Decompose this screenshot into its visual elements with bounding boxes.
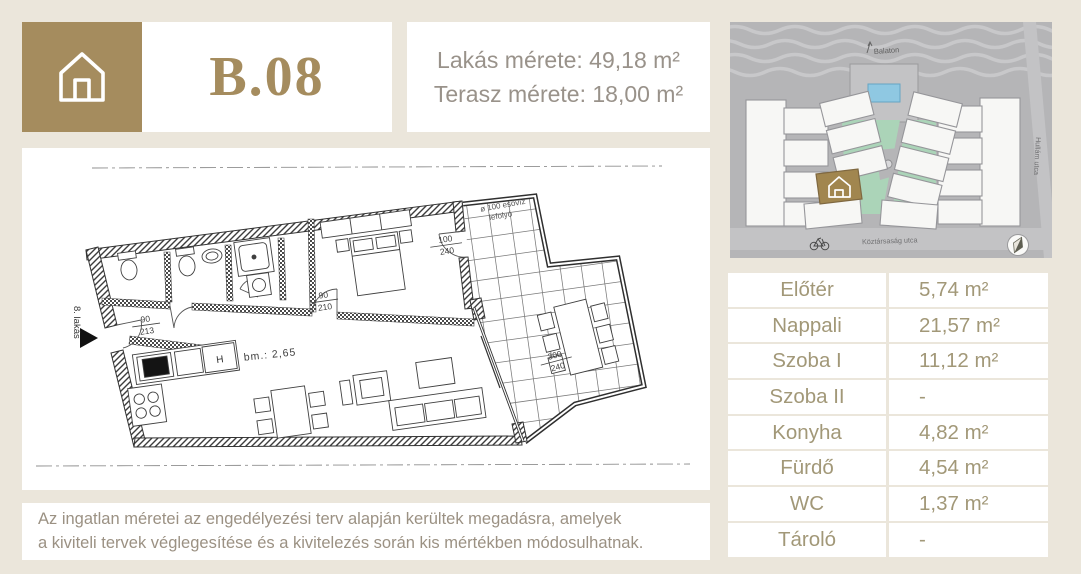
svg-text:90: 90 (140, 313, 151, 324)
unit-code: B.08 (209, 45, 324, 109)
room-name: Szoba II (728, 380, 886, 414)
room-name: WC (728, 487, 886, 521)
svg-text:100: 100 (438, 233, 454, 245)
svg-text:90: 90 (318, 289, 329, 300)
apartment-size: Lakás mérete: 49,18 m² (437, 47, 680, 74)
svg-text:Balaton: Balaton (874, 45, 900, 56)
size-box: Lakás mérete: 49,18 m² Terasz mérete: 18… (407, 22, 710, 132)
dining-set (253, 383, 329, 440)
room-name: Nappali (728, 309, 886, 343)
room-name: Fürdő (728, 451, 886, 485)
bedroom-set (320, 210, 420, 300)
disclaimer-line2: a kiviteli tervek véglegesítése és a kiv… (38, 532, 710, 555)
svg-text:213: 213 (139, 325, 155, 337)
room-area: 11,12 m² (889, 344, 1048, 378)
room-area: - (889, 523, 1048, 557)
interior-walls (102, 219, 474, 356)
svg-text:210: 210 (317, 301, 333, 313)
room-name: Előtér (728, 273, 886, 307)
site-map: Balaton Köztársaság utca Hullám utca (730, 22, 1052, 258)
highlighted-unit (816, 169, 862, 204)
disclaimer: Az ingatlan méretei az engedélyezési ter… (22, 503, 710, 560)
room-area-table: Előtér 5,74 m² Nappali 21,57 m² Szoba I … (728, 273, 1048, 557)
room-area: 21,57 m² (889, 309, 1048, 343)
kitchen: H (128, 340, 240, 426)
disclaimer-line1: Az ingatlan méretei az engedélyezési ter… (38, 508, 710, 531)
entrance-label: 8. lakás (71, 306, 82, 339)
room-area: 4,82 m² (889, 416, 1048, 450)
room-area: - (889, 380, 1048, 414)
room-area: 5,74 m² (889, 273, 1048, 307)
terrace-size: Terasz mérete: 18,00 m² (434, 81, 683, 108)
room-name: Tároló (728, 523, 886, 557)
room-area: 4,54 m² (889, 451, 1048, 485)
room-name: Szoba I (728, 344, 886, 378)
room-name: Konyha (728, 416, 886, 450)
house-icon (51, 46, 113, 108)
fridge-label: H (216, 354, 225, 366)
room-area: 1,37 m² (889, 487, 1048, 521)
ceiling-height-label: bm.: 2,65 (243, 346, 297, 363)
unit-logo-box (22, 22, 142, 132)
floor-plan: 8. lakás H (22, 148, 710, 490)
svg-text:240: 240 (439, 245, 455, 257)
living-set (338, 354, 486, 437)
unit-code-box: B.08 (142, 22, 392, 132)
